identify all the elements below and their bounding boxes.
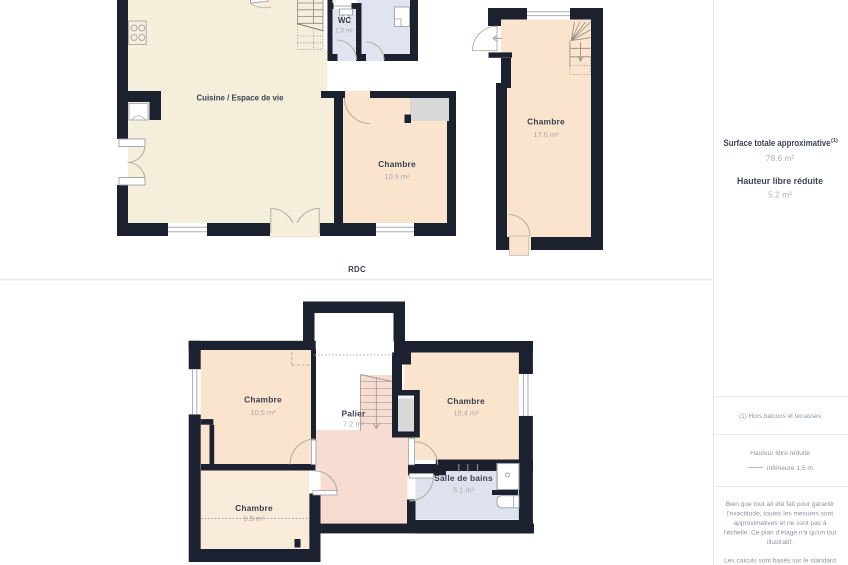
svg-text:(1) Hors balcons et terrasses: (1) Hors balcons et terrasses xyxy=(739,413,821,420)
svg-text:illustratif.: illustratif. xyxy=(767,539,793,546)
svg-text:1.3 m²: 1.3 m² xyxy=(335,28,353,35)
svg-text:Bien que tout ait été fait pou: Bien que tout ait été fait pour garantir xyxy=(726,501,835,508)
svg-text:(1): (1) xyxy=(831,138,838,144)
svg-text:Les calculs sont basés sur le: Les calculs sont basés sur le standard xyxy=(724,558,836,565)
svg-text:10.5 m²: 10.5 m² xyxy=(250,408,276,417)
svg-text:Chambre: Chambre xyxy=(244,395,282,405)
svg-text:7.2 m²: 7.2 m² xyxy=(343,420,364,429)
svg-text:Hauteur libre réduite: Hauteur libre réduite xyxy=(750,450,810,457)
svg-text:17.6 m²: 17.6 m² xyxy=(533,130,559,139)
svg-text:WC: WC xyxy=(338,16,351,25)
svg-text:approximatives et ne sont pas: approximatives et ne sont pas à xyxy=(733,520,826,527)
svg-text:Chambre: Chambre xyxy=(235,503,273,513)
svg-text:inférieure 1.5 m.: inférieure 1.5 m. xyxy=(767,465,815,472)
svg-text:10.4 m²: 10.4 m² xyxy=(453,409,479,418)
svg-text:5.2 m²: 5.2 m² xyxy=(768,190,792,200)
svg-text:Hauteur libre réduite: Hauteur libre réduite xyxy=(737,176,823,186)
svg-text:Salle de bains: Salle de bains xyxy=(434,473,493,483)
svg-text:l'échelle. Ce plan d'étage n'a: l'échelle. Ce plan d'étage n'a qu'un but xyxy=(724,530,837,537)
svg-text:78.6 m²: 78.6 m² xyxy=(766,153,795,163)
svg-text:Cuisine / Espace de vie: Cuisine / Espace de vie xyxy=(197,93,284,103)
svg-text:Chambre: Chambre xyxy=(447,396,485,406)
svg-text:Chambre: Chambre xyxy=(527,117,565,127)
svg-text:10.9 m²: 10.9 m² xyxy=(384,172,410,181)
svg-text:5.1 m²: 5.1 m² xyxy=(453,486,474,495)
svg-text:Surface totale approximative: Surface totale approximative xyxy=(724,138,831,148)
svg-text:Chambre: Chambre xyxy=(378,159,416,169)
svg-text:RDC: RDC xyxy=(348,265,366,274)
svg-text:Palier: Palier xyxy=(341,409,366,419)
svg-text:9.5 m²: 9.5 m² xyxy=(244,514,265,523)
svg-text:l'exactitude, toutes les mesur: l'exactitude, toutes les mesures sont xyxy=(727,511,833,518)
